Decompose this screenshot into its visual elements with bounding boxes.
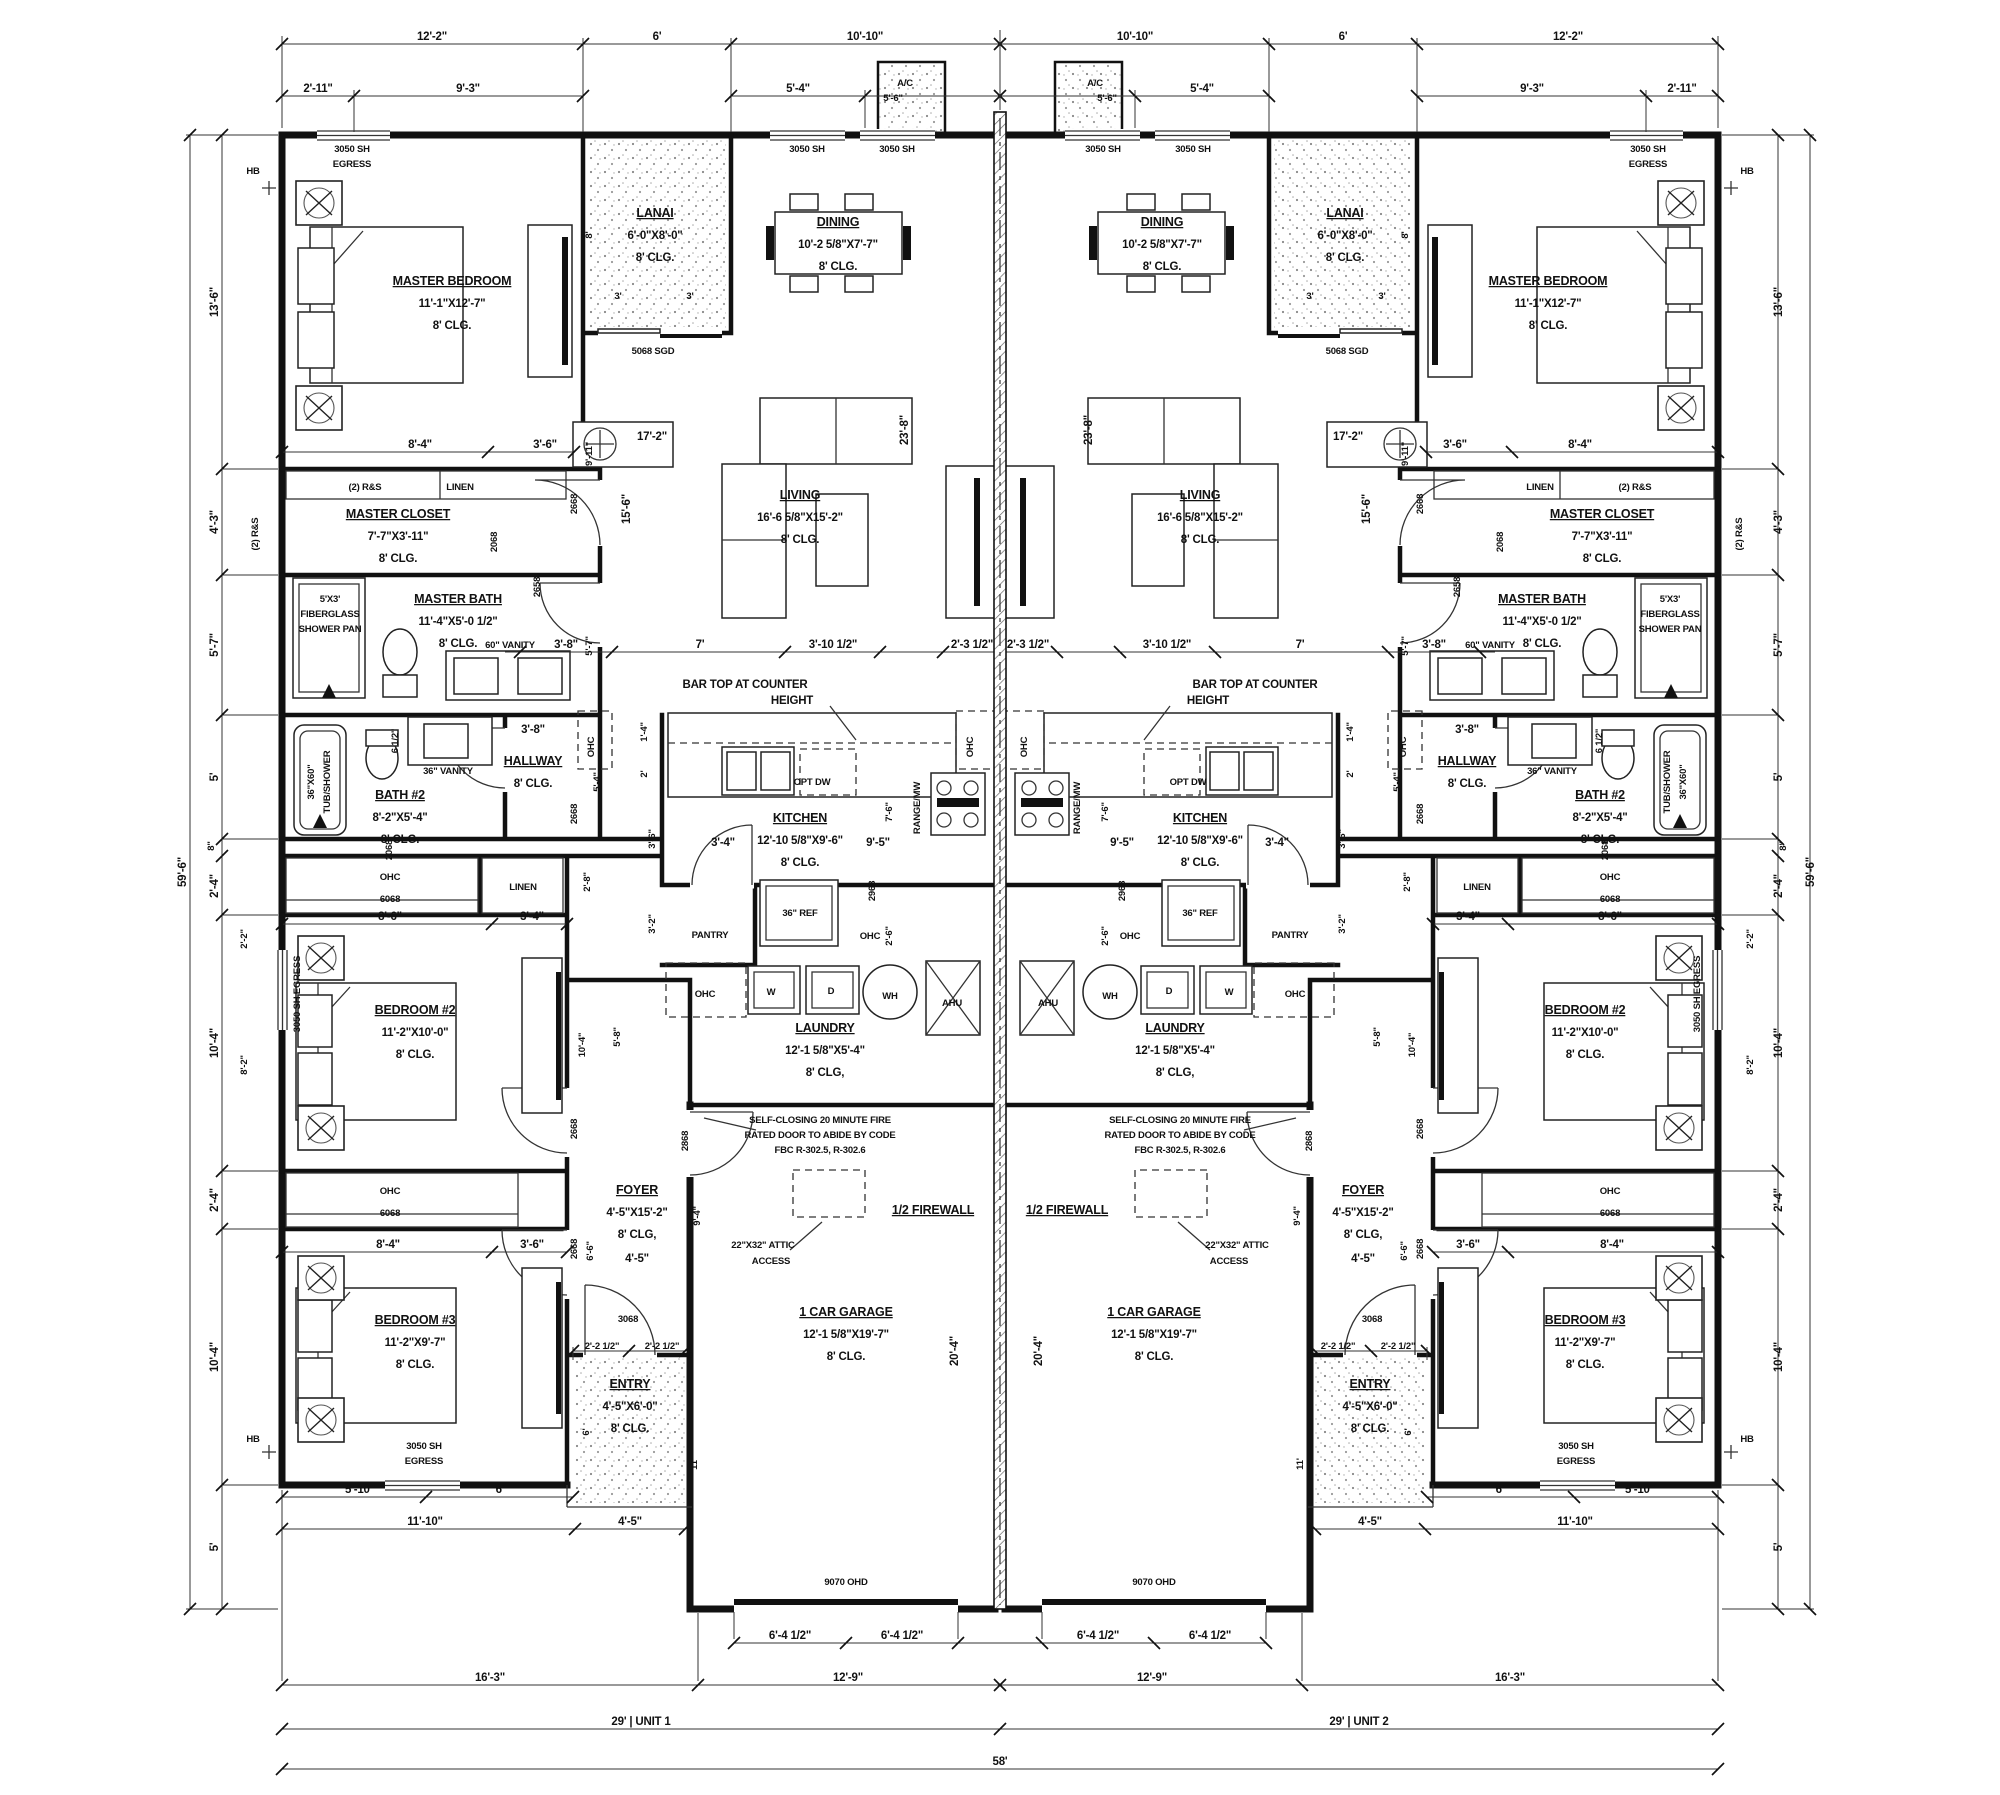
dim-label: 5'-7": [209, 633, 221, 657]
room-clg-label: 8' CLG.: [1143, 261, 1181, 273]
room-clg-label: 8' CLG.: [1181, 857, 1219, 869]
door-label: 5068 SGD: [632, 346, 675, 357]
dim-label: 2'-8": [1402, 872, 1413, 892]
door-label: 5068 SGD: [1326, 346, 1369, 357]
fixture-label: TUB/SHOWER: [322, 750, 333, 813]
room-clg-label: 8' CLG,: [806, 1067, 844, 1079]
dim-label: 2'-2 1/2": [585, 1341, 620, 1352]
dim-label: 3'-8": [521, 724, 545, 736]
door-code-label: 2668: [569, 1119, 580, 1139]
dim-label: 8'-4": [1600, 1239, 1624, 1251]
appliance-label: W: [767, 987, 776, 998]
closet-label: LINEN: [1463, 882, 1491, 893]
cabinet-label: OHC: [380, 872, 401, 883]
dim-label: 2'-3 1/2": [951, 639, 993, 651]
counter-note: BAR TOP AT COUNTER: [682, 679, 808, 691]
appliance-label: D: [1166, 986, 1173, 997]
door-label: 9070 OHD: [824, 1577, 868, 1588]
dim-label: 2'-4": [1773, 1188, 1785, 1212]
appliance-label: AHU: [942, 998, 962, 1009]
room-name-label: MASTER BEDROOM: [1489, 274, 1608, 288]
dim-label: 23'-8": [899, 415, 911, 445]
room-clg-label: 8' CLG.: [396, 1359, 434, 1371]
floor-plan-canvas: MASTER BEDROOM 11'-1"X12'-7" 8' CLG. LAN…: [0, 0, 2000, 1795]
dim-label: 2'-2": [239, 929, 250, 949]
dim-label: 16'-3": [1495, 1672, 1525, 1684]
door-code-label: 2968: [1117, 881, 1128, 901]
door-code-label: 2668: [569, 804, 580, 824]
door-label: 9070 OHD: [1132, 1577, 1176, 1588]
dim-label: 8": [1778, 841, 1789, 850]
dim-label: 12'-9": [833, 1672, 863, 1684]
counter-note: HEIGHT: [771, 695, 813, 707]
dim-label: 3'-4": [1456, 911, 1480, 923]
dim-label: 10'-10": [1117, 31, 1153, 43]
dim-label: 6 1/2": [1594, 729, 1605, 753]
counter-note: BAR TOP AT COUNTER: [1192, 679, 1318, 691]
room-name-label: 1 CAR GARAGE: [1107, 1305, 1200, 1319]
fixture-label: 36"X60": [306, 764, 317, 799]
appliance-label: WH: [882, 991, 898, 1002]
door-code-label: 2668: [1415, 804, 1426, 824]
dim-label: 10'-4": [1773, 1028, 1785, 1058]
room-size-label: 7'-7"X3'-11": [1572, 531, 1633, 543]
dim-label: 8'-2": [1745, 1055, 1756, 1075]
room-size-label: 16'-6 5/8"X15'-2": [757, 512, 843, 524]
room-size-label: 12'-10 5/8"X9'-6": [1157, 835, 1243, 847]
fire-door-note: RATED DOOR TO ABIDE BY CODE: [1104, 1130, 1255, 1141]
hose-bib-label: HB: [1740, 166, 1754, 177]
window-label: EGRESS: [405, 1456, 443, 1467]
attic-access-note: 22"X32" ATTIC: [1205, 1240, 1269, 1251]
door-code-label: 6068: [380, 1208, 400, 1219]
appliance-label: AHU: [1038, 998, 1058, 1009]
cabinet-label: OHC: [1600, 872, 1621, 883]
room-name-label: ENTRY: [1350, 1377, 1392, 1391]
dim-label: 20'-4": [1033, 1336, 1045, 1366]
window-label: EGRESS: [333, 159, 371, 170]
unit-dim-label: 29' | UNIT 2: [1329, 1716, 1388, 1728]
closet-label: LINEN: [509, 882, 537, 893]
room-clg-label: 8' CLG.: [1181, 534, 1219, 546]
room-clg-label: 8' CLG.: [1529, 320, 1567, 332]
room-name-label: MASTER BATH: [414, 592, 502, 606]
door-code-label: 2868: [1304, 1131, 1315, 1151]
dim-label: 5'-7": [1773, 633, 1785, 657]
dim-label: 8': [1400, 231, 1411, 238]
room-size-label: 11'-2"X10'-0": [1552, 1027, 1619, 1039]
dim-label: 16'-3": [475, 1672, 505, 1684]
room-clg-label: 8' CLG,: [1156, 1067, 1194, 1079]
dim-label: 6'-4 1/2": [769, 1630, 811, 1642]
dim-label: 10'-10": [847, 31, 883, 43]
room-size-label: 11'-1"X12'-7": [419, 298, 486, 310]
dim-label: 1'-4": [1345, 722, 1356, 742]
dim-label: 8'-6": [1598, 911, 1622, 923]
shelf-label: (2) R&S: [1734, 518, 1745, 551]
fixture-label: 60" VANITY: [485, 640, 536, 651]
unit2-graphics: [994, 36, 1816, 1691]
dim-label: 6'-6": [585, 1241, 596, 1261]
room-name-label: BEDROOM #2: [1545, 1003, 1626, 1017]
dim-label: 2'-8": [582, 872, 593, 892]
dim-label: 5'-8": [1372, 1027, 1383, 1047]
room-size-label: 11'-2"X9'-7": [1555, 1337, 1616, 1349]
dim-label: 11'-10": [1557, 1516, 1593, 1528]
unit-dim-label: 29' | UNIT 1: [611, 1716, 671, 1728]
dim-label: 6'-4 1/2": [1077, 1630, 1119, 1642]
fixture-label: 5'X3': [320, 594, 340, 605]
room-size-label: 12'-1 5/8"X19'-7": [803, 1329, 889, 1341]
room-size-label: 11'-1"X12'-7": [1515, 298, 1582, 310]
dim-label: 13'-6": [209, 287, 221, 317]
dim-label: 2'-11": [1667, 83, 1696, 95]
bedroom2-furniture: [296, 936, 562, 1150]
dim-label: 3'-6": [1456, 1239, 1480, 1251]
room-name-label: DINING: [817, 215, 860, 229]
fixture-label: 36" VANITY: [1527, 766, 1578, 777]
floor-plan-page: MASTER BEDROOM 11'-1"X12'-7" 8' CLG. LAN…: [0, 0, 2000, 1795]
dim-label: 6': [653, 31, 662, 43]
door-code-label: 2668: [569, 1239, 580, 1259]
appliance-label: OPT DW: [1170, 777, 1207, 788]
closet-label: PANTRY: [692, 930, 730, 941]
dim-label: 2'-2 1/2": [1321, 1341, 1356, 1352]
room-size-label: 11'-2"X9'-7": [385, 1337, 446, 1349]
dim-label: 3': [1306, 291, 1313, 302]
window-label: 3050 SH: [406, 1441, 442, 1452]
fixture-label: 36"X60": [1678, 764, 1689, 799]
dim-label: 6': [1496, 1484, 1505, 1496]
dim-label: 7': [1296, 639, 1305, 651]
dim-label: 8'-6": [378, 911, 402, 923]
door-code-label: 2668: [1415, 1239, 1426, 1259]
firewall: [994, 112, 1006, 1609]
closet-label: PANTRY: [1272, 930, 1310, 941]
dim-label: 23'-8": [1083, 415, 1095, 445]
dim-label: 3'-2": [1337, 914, 1348, 934]
cabinet-label: OHC: [1600, 1186, 1621, 1197]
room-name-label: LIVING: [1180, 488, 1220, 502]
bedroom3-furniture: [296, 1256, 562, 1442]
dim-label: 13'-6": [1773, 287, 1785, 317]
dim-label: 3'-6": [647, 829, 658, 849]
window-label: 3050 SH EGRESS: [292, 956, 303, 1032]
cabinet-label: OHC: [965, 736, 976, 757]
dim-label: 20'-4": [949, 1336, 961, 1366]
dim-label: 4'-5": [618, 1516, 642, 1528]
fixture-label: FIBERGLASS: [1640, 609, 1699, 620]
dim-label: 5': [1773, 1542, 1785, 1551]
door-code-label: 2968: [867, 881, 878, 901]
appliance-label: 36" REF: [782, 908, 818, 919]
fixture-label: SHOWER PAN: [299, 624, 362, 635]
door-code-label: 2668: [569, 494, 580, 514]
appliance-label: D: [828, 986, 835, 997]
dim-label: 6 1/2": [390, 729, 401, 753]
dim-label: 10'-4": [1773, 1342, 1785, 1372]
dim-label: 2'-3 1/2": [1007, 639, 1049, 651]
dim-label: 5'-7": [1400, 636, 1411, 656]
dim-label: 15'-6": [621, 494, 633, 524]
window-label: 3050 SH: [1558, 1441, 1594, 1452]
door-code-label: 2658: [532, 577, 543, 597]
room-size-label: 10'-2 5/8"X7'-7": [798, 239, 878, 251]
dim-label: 5'-10": [1625, 1484, 1655, 1496]
door-code-label: 3068: [618, 1314, 638, 1325]
room-name-label: MASTER BATH: [1498, 592, 1586, 606]
room-name-label: LANAI: [636, 206, 673, 220]
dim-label: 5'-4": [1190, 83, 1214, 95]
appliance-label: 36" REF: [1182, 908, 1218, 919]
hose-bib-label: HB: [1740, 1434, 1754, 1445]
dim-label: 59'-6": [177, 857, 189, 887]
dim-label: 9'-11": [1400, 442, 1411, 466]
window-label: EGRESS: [1557, 1456, 1595, 1467]
dim-label: 3'-8": [1422, 639, 1446, 651]
dim-label: 3'-8": [554, 639, 578, 651]
dim-label: 12'-2": [417, 31, 447, 43]
room-clg-label: 8' CLG.: [611, 1423, 649, 1435]
door-code-label: 2668: [1415, 1119, 1426, 1139]
dim-label: 3'-2": [647, 914, 658, 934]
dim-label: 3'-10 1/2": [1143, 639, 1191, 651]
room-clg-label: 8' CLG.: [1566, 1359, 1604, 1371]
unit1-graphics: [184, 36, 1006, 1691]
door-code-label: 6068: [1600, 1208, 1620, 1219]
dim-label: 5'-10": [345, 1484, 375, 1496]
dim-label: 3'-6": [520, 1239, 544, 1251]
room-name-label: 1 CAR GARAGE: [799, 1305, 892, 1319]
cabinet-label: OHC: [1019, 736, 1030, 757]
door-code-label: 2068: [1495, 532, 1506, 552]
fixture-label: FIBERGLASS: [300, 609, 359, 620]
dim-label: 6'-6": [1399, 1241, 1410, 1261]
cabinet-label: OHC: [695, 989, 716, 1000]
dim-label: 7'-6": [884, 802, 895, 822]
room-clg-label: 8' CLG.: [379, 553, 417, 565]
dim-label: 3'-4": [520, 911, 544, 923]
dim-label: 7'-6": [1100, 802, 1111, 822]
room-name-label: FOYER: [1342, 1183, 1384, 1197]
dim-label: 9'-11": [584, 442, 595, 466]
dim-label: 11': [689, 1458, 700, 1470]
appliance-label: WH: [1102, 991, 1118, 1002]
door-code-label: 2658: [1452, 577, 1463, 597]
dim-label: 6': [1339, 31, 1348, 43]
dim-label: 7': [696, 639, 705, 651]
dim-label: 9'-5": [866, 837, 890, 849]
shelf-label: (2) R&S: [1619, 482, 1652, 493]
dim-label: 2': [639, 770, 650, 777]
fixture-label: 36" VANITY: [423, 766, 474, 777]
attic-access-note: ACCESS: [1210, 1256, 1248, 1267]
dim-label: 8'-4": [376, 1239, 400, 1251]
cabinet-label: OHC: [1285, 989, 1306, 1000]
shelf-label: (2) R&S: [349, 482, 382, 493]
hose-bib: [262, 181, 276, 1459]
dim-label: 1'-4": [639, 722, 650, 742]
room-size-label: 11'-4"X5'-0 1/2": [418, 616, 497, 628]
door-code-label: 2068: [489, 532, 500, 552]
hose-bib-label: HB: [246, 1434, 260, 1445]
dim-label: 8'-4": [1568, 439, 1592, 451]
room-name-label: KITCHEN: [773, 811, 827, 825]
room-size-label: 10'-2 5/8"X7'-7": [1122, 239, 1202, 251]
room-name-label: BATH #2: [375, 788, 425, 802]
room-size-label: 4'-5"X6'-0": [1342, 1401, 1397, 1413]
appliance-label: RANGE/MW: [1072, 782, 1083, 834]
cabinet-label: OHC: [1398, 736, 1409, 757]
dim-label: 8'-4": [408, 439, 432, 451]
dim-label: 9'-3": [1520, 83, 1544, 95]
room-name-label: BEDROOM #2: [375, 1003, 456, 1017]
dim-label: 3': [1378, 291, 1385, 302]
room-clg-label: 8' CLG.: [1566, 1049, 1604, 1061]
dim-label: 11': [1295, 1458, 1306, 1470]
dim-label: 8'-2": [239, 1055, 250, 1075]
room-clg-label: 8' CLG.: [439, 638, 477, 650]
dim-label: 17'-2": [637, 431, 667, 443]
room-clg-label: 8' CLG.: [1135, 1351, 1173, 1363]
fire-door-note: SELF-CLOSING 20 MINUTE FIRE: [1109, 1115, 1251, 1126]
room-size-label: 12'-10 5/8"X9'-6": [757, 835, 843, 847]
room-clg-label: 8' CLG.: [514, 778, 552, 790]
closet-label: LINEN: [446, 482, 474, 493]
fixture-label: 60" VANITY: [1465, 640, 1516, 651]
dim-label: 11'-10": [407, 1516, 443, 1528]
dim-label: 6'-4 1/2": [1189, 1630, 1231, 1642]
dim-label: 2'-6": [884, 926, 895, 946]
dim-label: 5': [209, 1542, 221, 1551]
room-name-label: LAUNDRY: [1145, 1021, 1205, 1035]
dim-label: 3'-6": [1443, 439, 1467, 451]
dim-label: 2'-11": [303, 83, 332, 95]
room-name-label: ENTRY: [610, 1377, 652, 1391]
dim-label: 3'-6": [533, 439, 557, 451]
window-label: 3050 SH: [334, 144, 370, 155]
room-name-label: LIVING: [780, 488, 820, 502]
dim-label: 8": [206, 841, 217, 850]
dim-label: 5'-7": [584, 636, 595, 656]
dim-label: 3'-4": [1265, 837, 1289, 849]
dim-label: 6': [581, 1428, 592, 1435]
room-clg-label: 8' CLG.: [781, 534, 819, 546]
dim-label: 17'-2": [1333, 431, 1363, 443]
room-name-label: HALLWAY: [504, 754, 563, 768]
dim-label: 3'-8": [1455, 724, 1479, 736]
dim-label: 2'-2 1/2": [1381, 1341, 1416, 1352]
dim-label: 2'-4": [209, 1188, 221, 1212]
door-code-label: 2668: [1415, 494, 1426, 514]
dim-label: 15'-6": [1361, 494, 1373, 524]
ac-label: A/C: [1087, 78, 1103, 89]
counter-note: HEIGHT: [1187, 695, 1229, 707]
sliding-glass-door: [598, 327, 722, 339]
window-label: 3050 SH: [1630, 144, 1666, 155]
dim-label: 2': [1345, 770, 1356, 777]
door-code-label: 3068: [1362, 1314, 1382, 1325]
room-name-label: BEDROOM #3: [375, 1313, 456, 1327]
dim-label: 8': [584, 231, 595, 238]
window-label: 3050 SH: [1085, 144, 1121, 155]
room-name-label: LANAI: [1326, 206, 1363, 220]
appliance-label: W: [1225, 987, 1234, 998]
room-name-label: MASTER CLOSET: [1550, 507, 1655, 521]
window-label: 3050 SH: [1175, 144, 1211, 155]
cabinet-label: OHC: [586, 736, 597, 757]
door-code-label: 2068: [1600, 840, 1611, 860]
dim-label: 5'-4": [786, 83, 810, 95]
dim-label: 5'-4": [592, 772, 603, 792]
room-size-label: 12'-1 5/8"X5'-4": [1135, 1045, 1215, 1057]
dim-label: 5': [209, 772, 221, 781]
room-name-label: BEDROOM #3: [1545, 1313, 1626, 1327]
dim-label: 2'-6": [1100, 926, 1111, 946]
fixture-label: 5'X3': [1660, 594, 1680, 605]
firewall-label: 1/2 FIREWALL: [1026, 1203, 1109, 1217]
dim-label: 10'-4": [209, 1342, 221, 1372]
dim-label: 5'-6": [883, 93, 903, 104]
fixture-label: SHOWER PAN: [1639, 624, 1702, 635]
dim-label: 3': [686, 291, 693, 302]
room-size-label: 8'-2"X5'-4": [1572, 812, 1627, 824]
cabinet-label: OHC: [380, 1186, 401, 1197]
dim-label: 2'-4": [1773, 874, 1785, 898]
room-name-label: MASTER CLOSET: [346, 507, 451, 521]
closet-label: LINEN: [1526, 482, 1554, 493]
fire-door-note: SELF-CLOSING 20 MINUTE FIRE: [749, 1115, 891, 1126]
door-code-label: 6068: [1600, 894, 1620, 905]
hose-bib-label: HB: [246, 166, 260, 177]
room-name-label: KITCHEN: [1173, 811, 1227, 825]
dim-label: 2'-4": [209, 874, 221, 898]
room-clg-label: 8' CLG.: [433, 320, 471, 332]
room-clg-label: 8' CLG.: [827, 1351, 865, 1363]
dim-label: 5'-8": [612, 1027, 623, 1047]
attic-access-note: ACCESS: [752, 1256, 790, 1267]
room-size-label: 4'-5"X15'-2": [606, 1207, 667, 1219]
room-size-label: 16'-6 5/8"X15'-2": [1157, 512, 1243, 524]
room-name-label: LAUNDRY: [795, 1021, 855, 1035]
fixture-label: TUB/SHOWER: [1662, 750, 1673, 813]
dim-label: 5'-4": [1392, 772, 1403, 792]
fire-door-note: RATED DOOR TO ABIDE BY CODE: [744, 1130, 895, 1141]
room-size-label: 12'-1 5/8"X5'-4": [785, 1045, 865, 1057]
room-size-label: 7'-7"X3'-11": [368, 531, 429, 543]
dim-label: 9'-3": [456, 83, 480, 95]
dim-label: 12'-2": [1553, 31, 1583, 43]
dim-label: 4'-5": [1358, 1516, 1382, 1528]
door-code-label: 6068: [380, 894, 400, 905]
room-name-label: BATH #2: [1575, 788, 1625, 802]
window-label: 3050 SH: [879, 144, 915, 155]
dim-label: 3'-6": [1337, 829, 1348, 849]
room-name-label: MASTER BEDROOM: [393, 274, 512, 288]
window-label: 3050 SH: [789, 144, 825, 155]
dim-label: 3'-4": [711, 837, 735, 849]
room-clg-label: 8' CLG.: [1326, 252, 1364, 264]
fire-door-note: FBC R-302.5, R-302.6: [1134, 1145, 1225, 1156]
dim-label: 10'-4": [1407, 1033, 1418, 1058]
dim-label: 10'-4": [577, 1033, 588, 1058]
cabinet-label: OHC: [1120, 931, 1141, 942]
room-clg-label: 8' CLG.: [1351, 1423, 1389, 1435]
dim-label: 9'-4": [692, 1206, 703, 1226]
cabinet-label: OHC: [860, 931, 881, 942]
dim-label: 4'-5": [1351, 1253, 1375, 1265]
room-name-label: HALLWAY: [1438, 754, 1497, 768]
